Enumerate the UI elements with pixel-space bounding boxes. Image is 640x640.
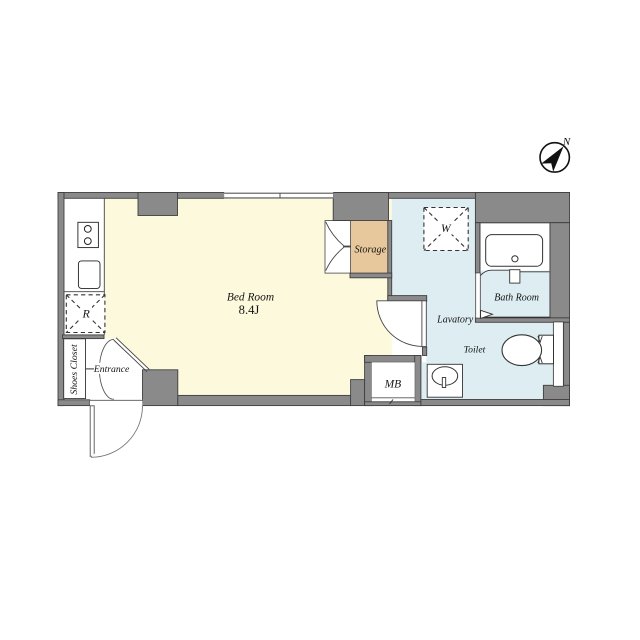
svg-text:W: W	[441, 223, 452, 235]
svg-text:Bed Room: Bed Room	[227, 292, 274, 304]
svg-text:Lavatory: Lavatory	[436, 314, 474, 325]
svg-text:Storage: Storage	[354, 244, 386, 255]
svg-text:Bath Room: Bath Room	[494, 292, 539, 303]
svg-text:MB: MB	[384, 378, 402, 390]
svg-text:R: R	[82, 306, 91, 320]
svg-text:N: N	[562, 136, 571, 148]
svg-text:Entrance: Entrance	[93, 364, 130, 375]
svg-text:Shoes Closet: Shoes Closet	[69, 344, 80, 395]
svg-text:Toilet: Toilet	[464, 345, 486, 356]
svg-text:8.4J: 8.4J	[239, 303, 260, 317]
